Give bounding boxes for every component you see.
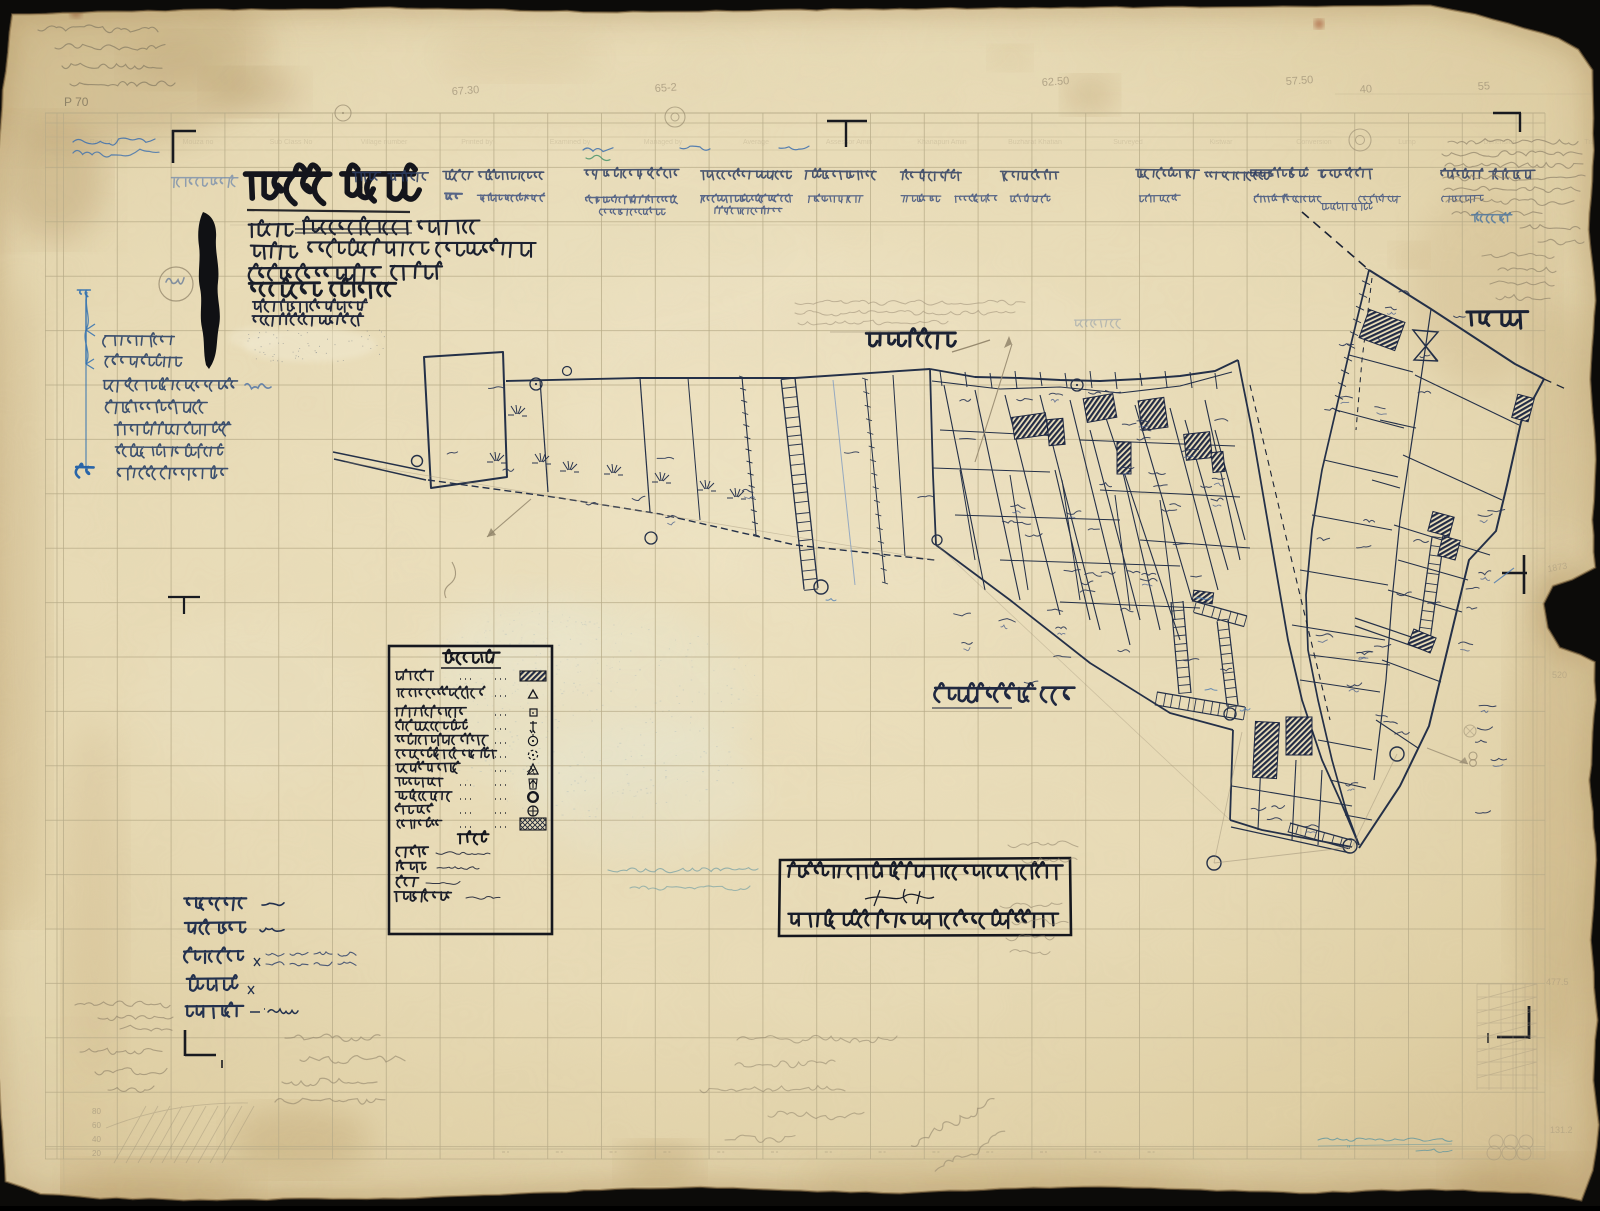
svg-text:477.5: 477.5	[1546, 977, 1569, 987]
svg-text:": "	[1347, 1144, 1350, 1154]
svg-text:Assessor Amin: Assessor Amin	[826, 139, 872, 146]
svg-text:Sub Class No: Sub Class No	[270, 139, 313, 146]
svg-text:40: 40	[92, 1135, 101, 1144]
svg-text:55: 55	[1477, 80, 1490, 93]
svg-text:131.2: 131.2	[1550, 1125, 1573, 1135]
svg-text:62.50: 62.50	[1041, 75, 1069, 89]
svg-text:520: 520	[1552, 670, 1567, 680]
svg-text:65-2: 65-2	[654, 81, 677, 95]
svg-text:57.50: 57.50	[1285, 74, 1313, 88]
svg-text:Khanapuri Amin: Khanapuri Amin	[917, 139, 967, 146]
svg-text:60: 60	[92, 1121, 101, 1130]
svg-text:20: 20	[92, 1149, 101, 1158]
svg-text:Managed by: Managed by	[644, 139, 683, 146]
svg-text:Lump: Lump	[1398, 139, 1416, 146]
svg-text:Printed by: Printed by	[461, 139, 493, 146]
svg-text:Conversion: Conversion	[1296, 139, 1332, 146]
svg-text:Surveyed: Surveyed	[1113, 139, 1143, 146]
svg-text:Buzharat Khatian: Buzharat Khatian	[1008, 139, 1062, 146]
svg-text:67.30: 67.30	[451, 84, 479, 98]
svg-text:Examined by: Examined by	[550, 139, 591, 146]
svg-text:80: 80	[92, 1107, 101, 1116]
svg-text:P 70: P 70	[64, 95, 89, 109]
svg-text:Record of: Record of	[90, 139, 120, 146]
svg-text:Mouza no: Mouza no	[183, 139, 214, 146]
svg-text:Average: Average	[743, 139, 769, 146]
svg-text:Village number: Village number	[361, 139, 408, 146]
svg-text:Kistwar: Kistwar	[1210, 139, 1234, 146]
svg-text:40: 40	[1359, 83, 1372, 96]
